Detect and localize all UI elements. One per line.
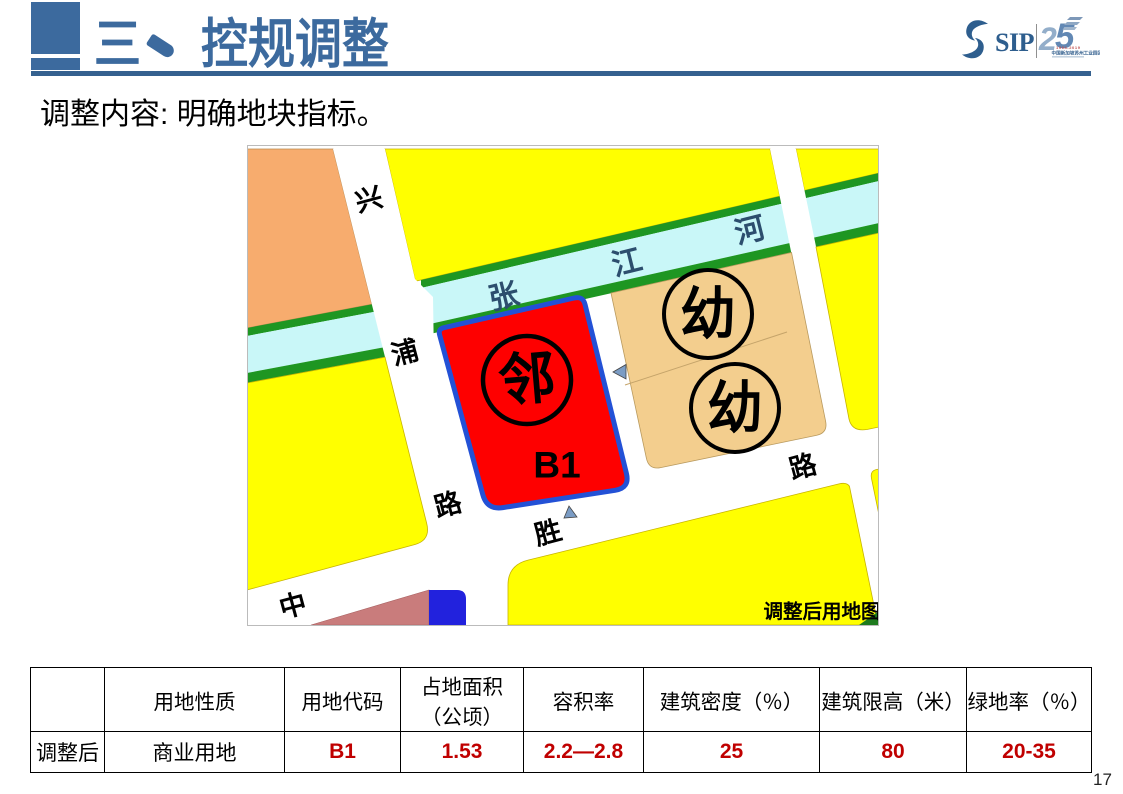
svg-text:邻: 邻 — [496, 346, 558, 415]
svg-text:调整后用地图: 调整后用地图 — [763, 600, 879, 623]
svg-text:幼: 幼 — [680, 283, 736, 346]
svg-text:中国新加坡苏州工业园区: 中国新加坡苏州工业园区 — [1052, 50, 1101, 57]
svg-text:SIP: SIP — [995, 28, 1035, 57]
svg-text:幼: 幼 — [707, 377, 763, 440]
svg-text:1994-2019: 1994-2019 — [1056, 45, 1081, 50]
svg-text:B1: B1 — [533, 445, 580, 486]
